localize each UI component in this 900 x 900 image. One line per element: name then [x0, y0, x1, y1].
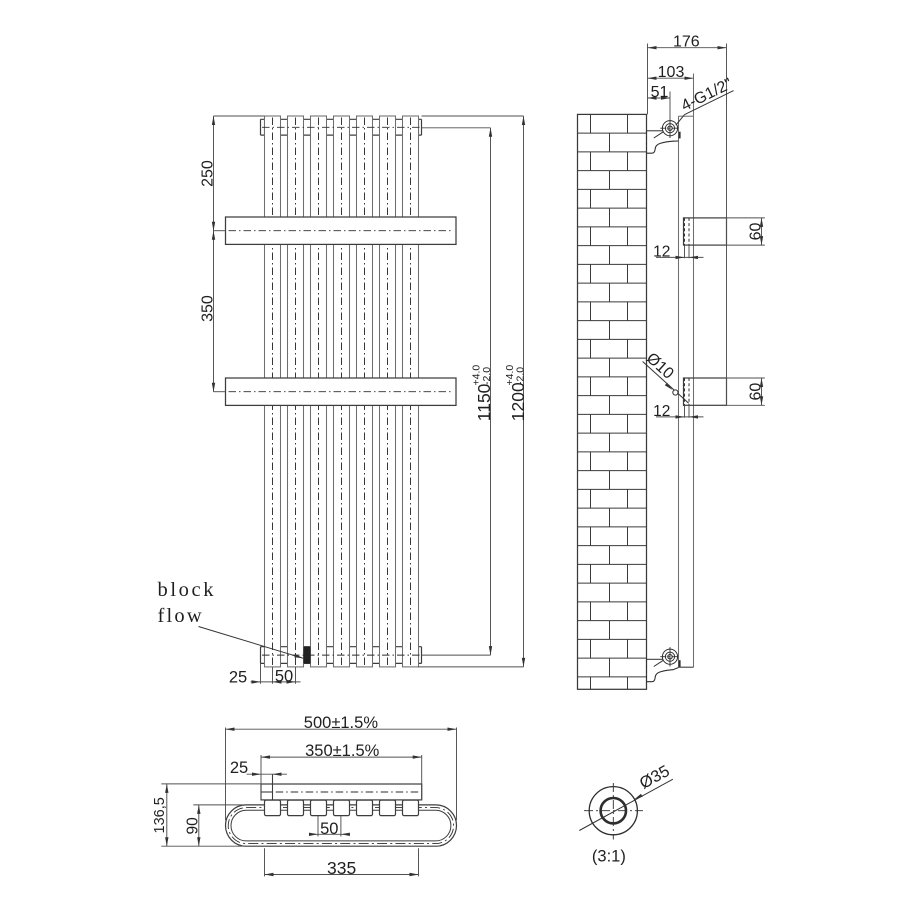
svg-text:flow: flow — [158, 605, 204, 627]
svg-text:51: 51 — [651, 84, 669, 101]
svg-text:25: 25 — [229, 668, 247, 686]
svg-text:90: 90 — [185, 817, 202, 835]
svg-text:12: 12 — [653, 403, 670, 420]
svg-text:335: 335 — [327, 858, 356, 878]
svg-text:-2.0: -2.0 — [481, 367, 493, 385]
svg-text:350±1.5%: 350±1.5% — [305, 742, 380, 760]
svg-text:(3:1): (3:1) — [592, 848, 626, 866]
svg-text:50: 50 — [275, 667, 293, 685]
svg-text:1150: 1150 — [474, 383, 494, 421]
svg-text:-2.0: -2.0 — [515, 367, 527, 385]
svg-text:136,5: 136,5 — [152, 797, 168, 833]
svg-text:176: 176 — [673, 34, 700, 51]
svg-text:25: 25 — [230, 759, 248, 777]
svg-text:60: 60 — [747, 383, 764, 401]
svg-text:block: block — [158, 579, 217, 601]
svg-text:250: 250 — [200, 160, 217, 187]
svg-text:350: 350 — [200, 295, 217, 322]
svg-text:1200: 1200 — [508, 382, 528, 421]
svg-text:12: 12 — [653, 243, 670, 260]
svg-text:103: 103 — [658, 64, 685, 81]
svg-text:500±1.5%: 500±1.5% — [304, 714, 379, 732]
svg-text:60: 60 — [747, 223, 764, 241]
svg-text:50: 50 — [320, 820, 338, 838]
